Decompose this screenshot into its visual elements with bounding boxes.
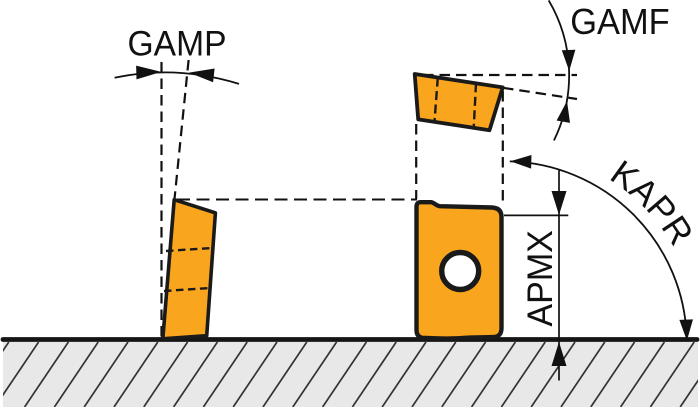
svg-text:GAMF: GAMF <box>570 1 670 42</box>
svg-text:APMX: APMX <box>520 230 560 327</box>
svg-text:GAMP: GAMP <box>128 24 227 64</box>
